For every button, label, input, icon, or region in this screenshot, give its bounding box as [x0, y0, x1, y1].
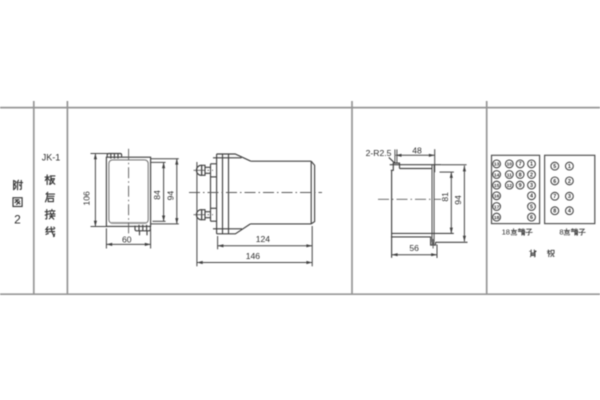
svg-text:2: 2	[14, 213, 21, 227]
svg-text:6: 6	[530, 215, 533, 221]
svg-text:7: 7	[553, 194, 556, 200]
svg-text:16: 16	[494, 194, 500, 200]
svg-text:5: 5	[530, 204, 533, 210]
svg-text:2: 2	[568, 179, 571, 185]
svg-text:4: 4	[530, 194, 533, 200]
svg-text:1: 1	[568, 164, 571, 170]
svg-text:84: 84	[152, 190, 162, 200]
svg-text:56: 56	[409, 243, 419, 253]
svg-text:94: 94	[453, 195, 463, 205]
svg-text:9: 9	[519, 183, 522, 189]
svg-text:4: 4	[568, 209, 571, 215]
svg-text:6: 6	[553, 179, 556, 185]
svg-text:14: 14	[494, 172, 500, 178]
svg-text:18: 18	[502, 228, 510, 237]
svg-text:12: 12	[507, 183, 513, 189]
svg-text:15: 15	[494, 183, 500, 189]
svg-text:7: 7	[519, 162, 522, 168]
svg-text:5: 5	[553, 164, 556, 170]
svg-text:2-R2.5: 2-R2.5	[366, 148, 392, 158]
svg-text:8: 8	[519, 172, 522, 178]
svg-text:17: 17	[494, 204, 500, 210]
svg-text:60: 60	[122, 235, 132, 245]
svg-text:18: 18	[494, 215, 500, 221]
svg-text:11: 11	[507, 172, 512, 178]
svg-text:8: 8	[559, 228, 563, 237]
svg-text:106: 106	[82, 191, 92, 206]
svg-text:8: 8	[553, 209, 556, 215]
svg-text:3: 3	[530, 183, 533, 189]
svg-text:81: 81	[440, 192, 450, 202]
svg-text:124: 124	[256, 234, 271, 244]
svg-text:3: 3	[568, 194, 571, 200]
svg-text:146: 146	[246, 251, 261, 261]
svg-text:1: 1	[530, 162, 533, 168]
svg-text:94: 94	[166, 191, 176, 201]
svg-text:13: 13	[494, 162, 500, 168]
svg-text:JK-1: JK-1	[42, 152, 61, 162]
svg-text:10: 10	[507, 162, 513, 168]
svg-text:2: 2	[530, 172, 533, 178]
svg-text:48: 48	[412, 146, 422, 156]
